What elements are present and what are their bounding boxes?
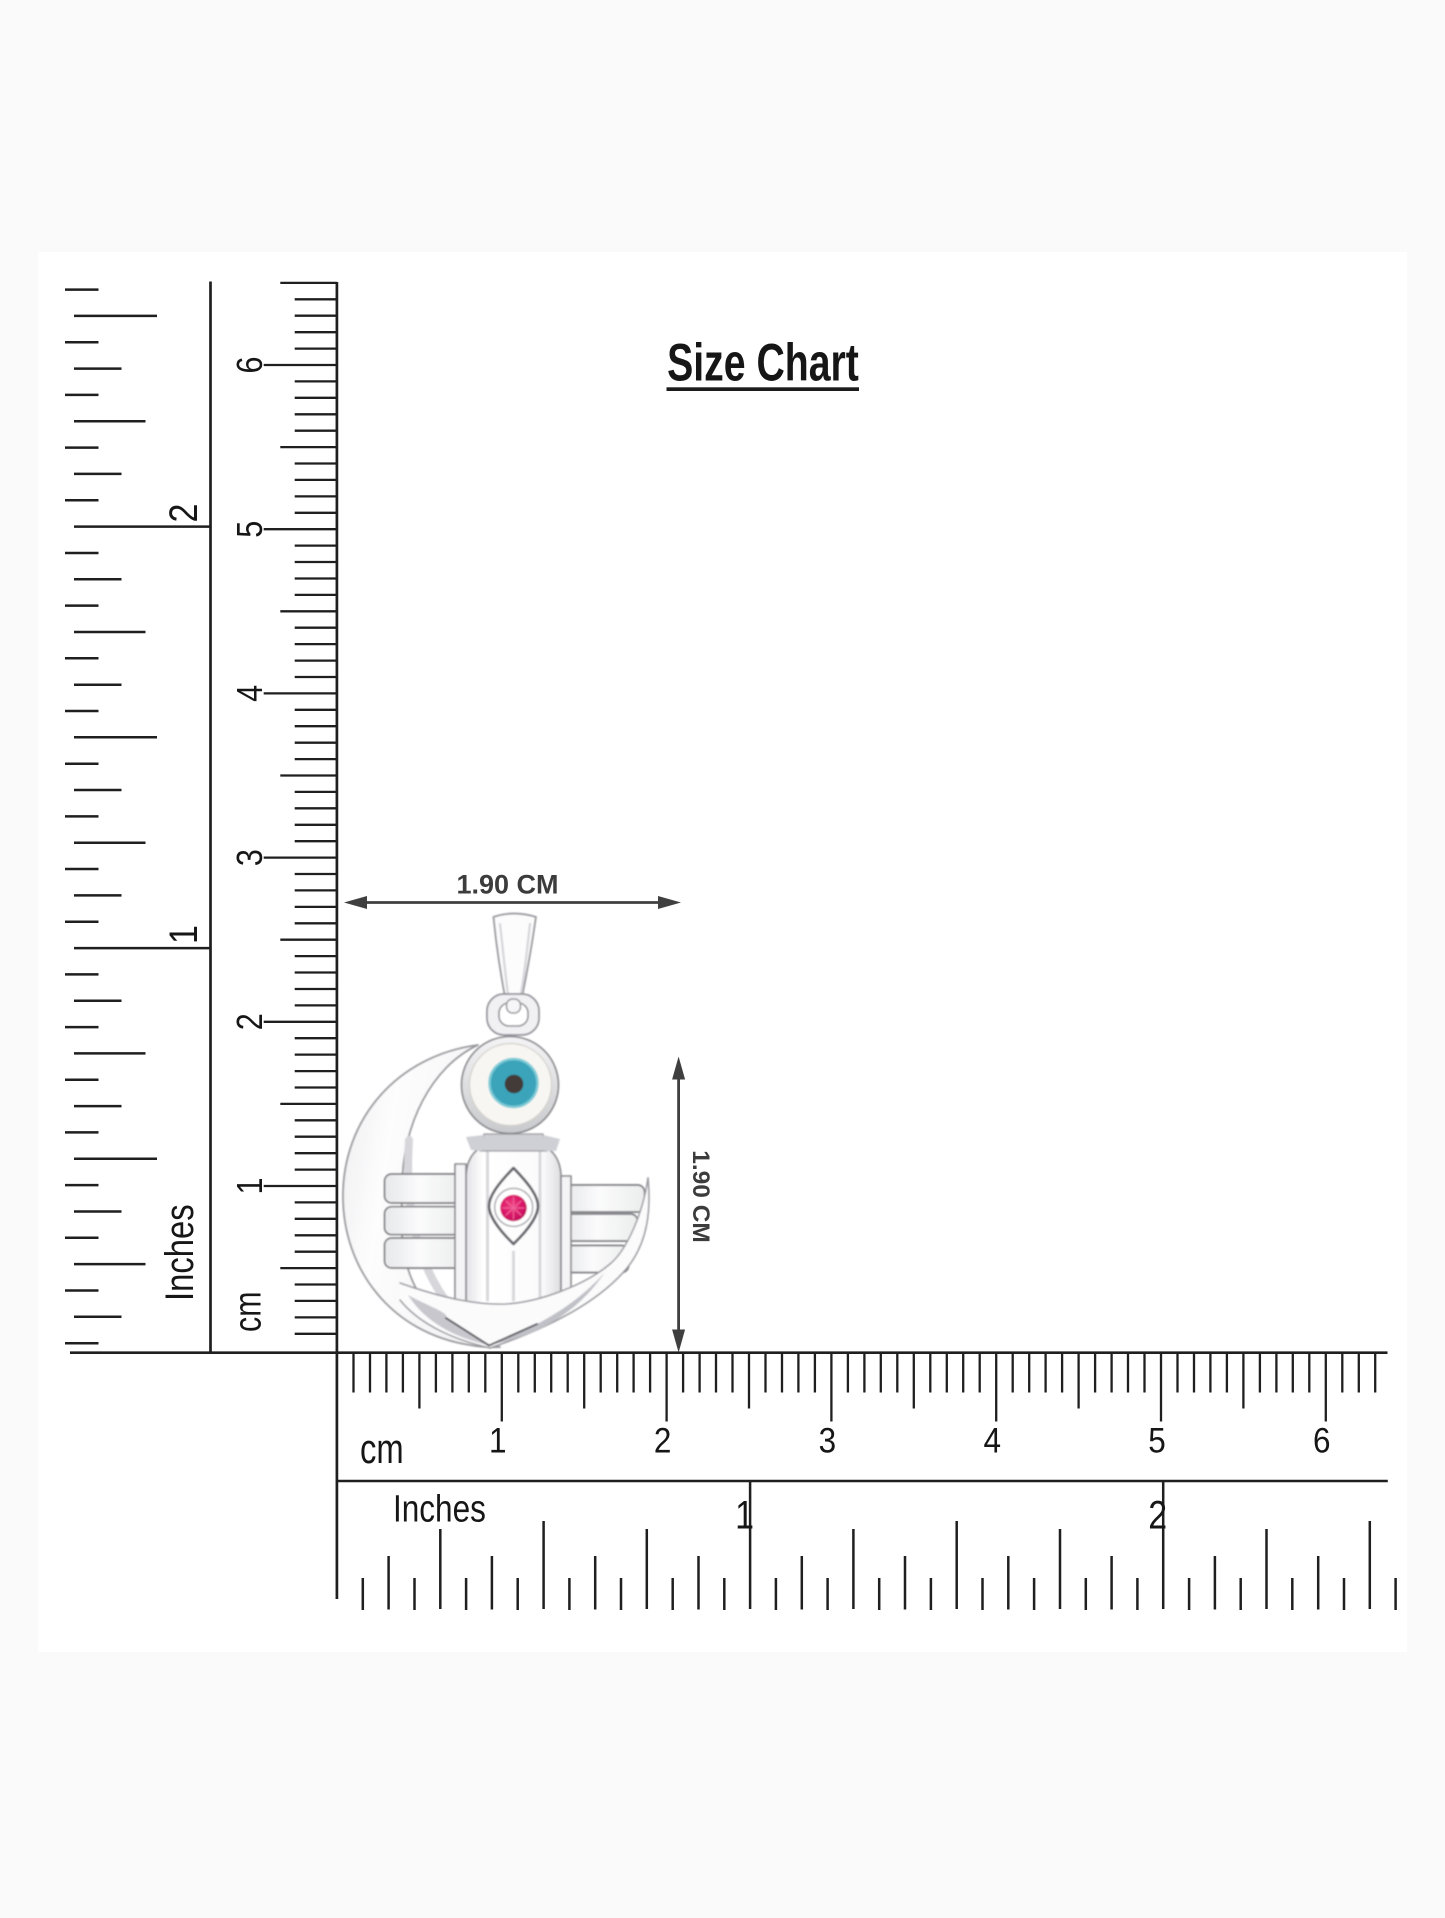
svg-text:5: 5 (1148, 1422, 1166, 1461)
svg-text:5: 5 (231, 521, 271, 538)
svg-text:2: 2 (1148, 1492, 1167, 1537)
svg-text:3: 3 (819, 1422, 837, 1461)
svg-text:1: 1 (735, 1492, 754, 1537)
svg-text:2: 2 (160, 504, 205, 523)
svg-text:3: 3 (231, 849, 271, 866)
svg-text:1: 1 (160, 925, 205, 944)
svg-text:1.90 CM: 1.90 CM (687, 1150, 714, 1243)
svg-text:4: 4 (231, 685, 271, 702)
svg-text:1: 1 (489, 1422, 507, 1461)
svg-text:1: 1 (231, 1177, 271, 1194)
svg-text:6: 6 (1313, 1422, 1331, 1461)
svg-text:4: 4 (983, 1422, 1001, 1461)
svg-text:cm: cm (360, 1425, 404, 1472)
svg-text:Size Chart: Size Chart (667, 333, 859, 392)
svg-text:6: 6 (231, 356, 271, 373)
svg-text:2: 2 (654, 1422, 672, 1461)
svg-text:1.90 CM: 1.90 CM (456, 870, 558, 900)
svg-text:cm: cm (227, 1291, 269, 1332)
svg-text:Inches: Inches (157, 1204, 202, 1301)
svg-text:2: 2 (231, 1013, 271, 1030)
svg-text:Inches: Inches (393, 1488, 486, 1530)
